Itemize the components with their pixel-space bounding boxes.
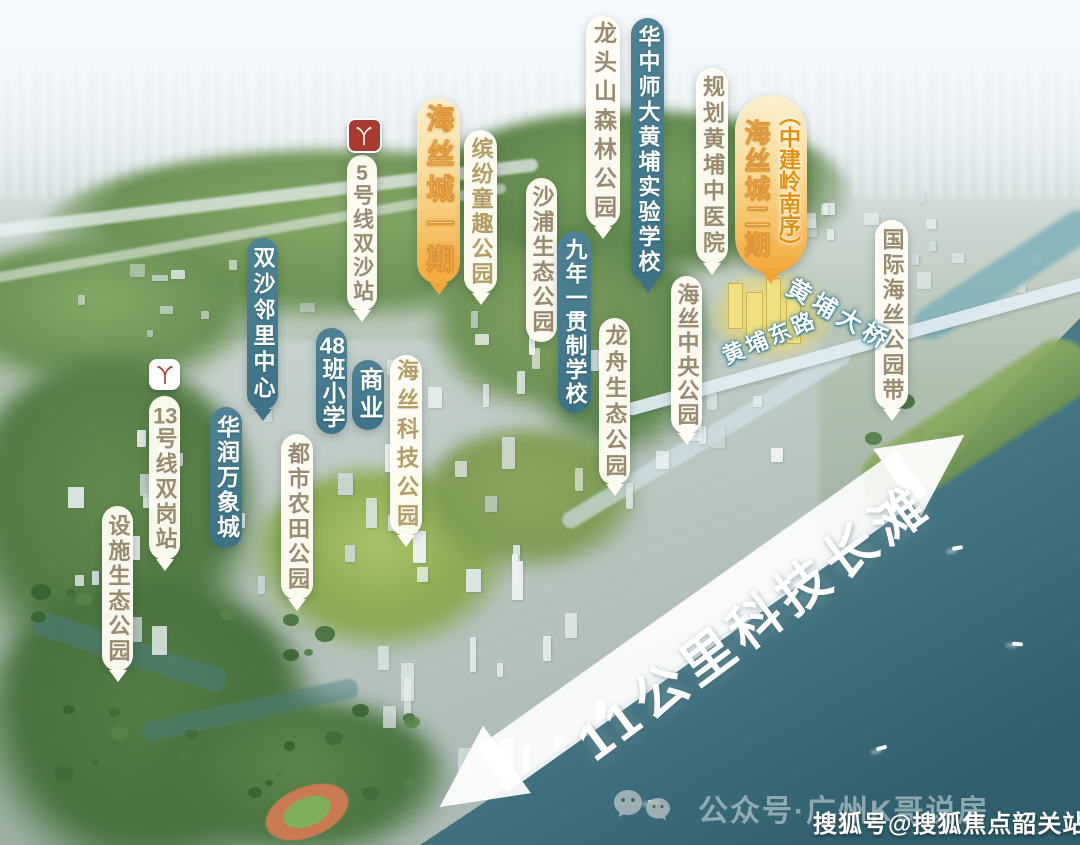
huazhong-normal-univ-huangpu-school-label: 华中师大黄埔实验学校	[637, 25, 659, 275]
shapu-eco-park-callout: 沙浦生态公园	[526, 178, 557, 342]
callout-pointer	[678, 433, 696, 445]
haisi-central-park-callout: 海丝中央公园	[671, 276, 702, 434]
line5-shuangsha-station-label: 5号线双沙站	[352, 163, 373, 304]
china-resources-mixc-callout: 华润万象城	[210, 407, 242, 548]
callout-pointer	[759, 268, 783, 284]
callout-pointer	[353, 310, 371, 322]
guangzhou-metro-icon	[149, 359, 180, 390]
urban-farmland-park-callout: 都市农田公园	[281, 434, 313, 600]
line13-shuanggang-station-label: 13号线双岗站	[154, 405, 176, 552]
callout-pointer	[397, 535, 415, 547]
haisi-tech-park-label: 海丝科技公园	[395, 359, 417, 533]
shuangsha-neighborhood-center-callout: 双沙邻里中心	[247, 238, 278, 410]
facility-eco-park-label: 设施生态公园	[107, 514, 129, 664]
callout-pointer	[156, 559, 174, 571]
line5-shuangsha-station-callout: 5号线双沙站	[347, 155, 377, 311]
haisi-city-phase2-label: 海丝城二期	[743, 119, 769, 259]
aerial-map: 11公里科技长滩 5号线双沙站双沙邻里中心海丝城一期缤纷童趣公园沙浦生态公园九年…	[0, 0, 1080, 845]
callout-pointer	[254, 409, 272, 421]
longtoushan-forest-park-callout: 龙头山森林公园	[586, 16, 620, 228]
haisi-central-park-label: 海丝中央公园	[676, 283, 698, 427]
binfen-childhood-fun-park-label: 缤纷童趣公园	[470, 137, 492, 287]
haisi-city-phase2-sublabel: （中建岭南序）	[777, 104, 799, 258]
callout-layer: 5号线双沙站双沙邻里中心海丝城一期缤纷童趣公园沙浦生态公园九年一贯制学校龙头山森…	[0, 0, 1080, 845]
international-haisi-park-belt-label: 国际海丝公园带	[881, 228, 903, 403]
callout-pointer	[703, 263, 721, 275]
shapu-eco-park-label: 沙浦生态公园	[531, 185, 553, 335]
planned-huangpu-tcm-hospital-label: 规划黄埔中医院	[701, 75, 723, 257]
longzhou-eco-park-label: 龙舟生态公园	[604, 324, 626, 480]
china-resources-mixc-label: 华润万象城	[215, 415, 238, 540]
longtoushan-forest-park-label: 龙头山森林公园	[592, 21, 615, 224]
line13-shuanggang-station-callout: 13号线双岗站	[149, 396, 180, 560]
haisi-tech-park-callout: 海丝科技公园	[390, 355, 422, 536]
wechat-icon	[612, 788, 680, 829]
planned-huangpu-tcm-hospital-callout: 规划黄埔中医院	[696, 68, 728, 264]
haisi-city-phase2-callout: 海丝城二期（中建岭南序）	[735, 95, 807, 273]
callout-pointer	[594, 227, 612, 239]
facility-eco-park-callout: 设施生态公园	[102, 506, 133, 671]
urban-farmland-park-label: 都市农田公园	[286, 442, 308, 592]
haisi-city-phase1-callout: 海丝城一期	[417, 98, 460, 284]
guangzhou-metro-icon	[347, 118, 382, 153]
callout-pointer	[606, 484, 624, 496]
sohu-watermark: 搜狐号@搜狐焦点韶关站	[813, 804, 1080, 839]
huazhong-normal-univ-huangpu-school-callout: 华中师大黄埔实验学校	[631, 18, 664, 282]
callout-pointer	[288, 599, 306, 611]
callout-pointer	[883, 409, 901, 421]
callout-pointer	[639, 281, 657, 293]
school-48-classes-label: 48班小学	[320, 334, 343, 429]
haisi-city-phase1-label: 海丝城一期	[425, 104, 453, 279]
nine-year-school-label: 九年一贯制学校	[564, 238, 586, 406]
commercial-callout: 商业	[352, 360, 384, 430]
callout-pointer	[430, 283, 448, 295]
longzhou-eco-park-callout: 龙舟生态公园	[599, 318, 630, 485]
callout-pointer	[109, 670, 127, 682]
binfen-childhood-fun-park-callout: 缤纷童趣公园	[464, 130, 497, 294]
shuangsha-neighborhood-center-label: 双沙邻里中心	[252, 246, 274, 402]
callout-pointer	[472, 293, 490, 305]
nine-year-school-callout: 九年一贯制学校	[558, 231, 591, 413]
commercial-label: 商业	[356, 367, 380, 423]
school-48-classes-callout: 48班小学	[316, 328, 347, 434]
